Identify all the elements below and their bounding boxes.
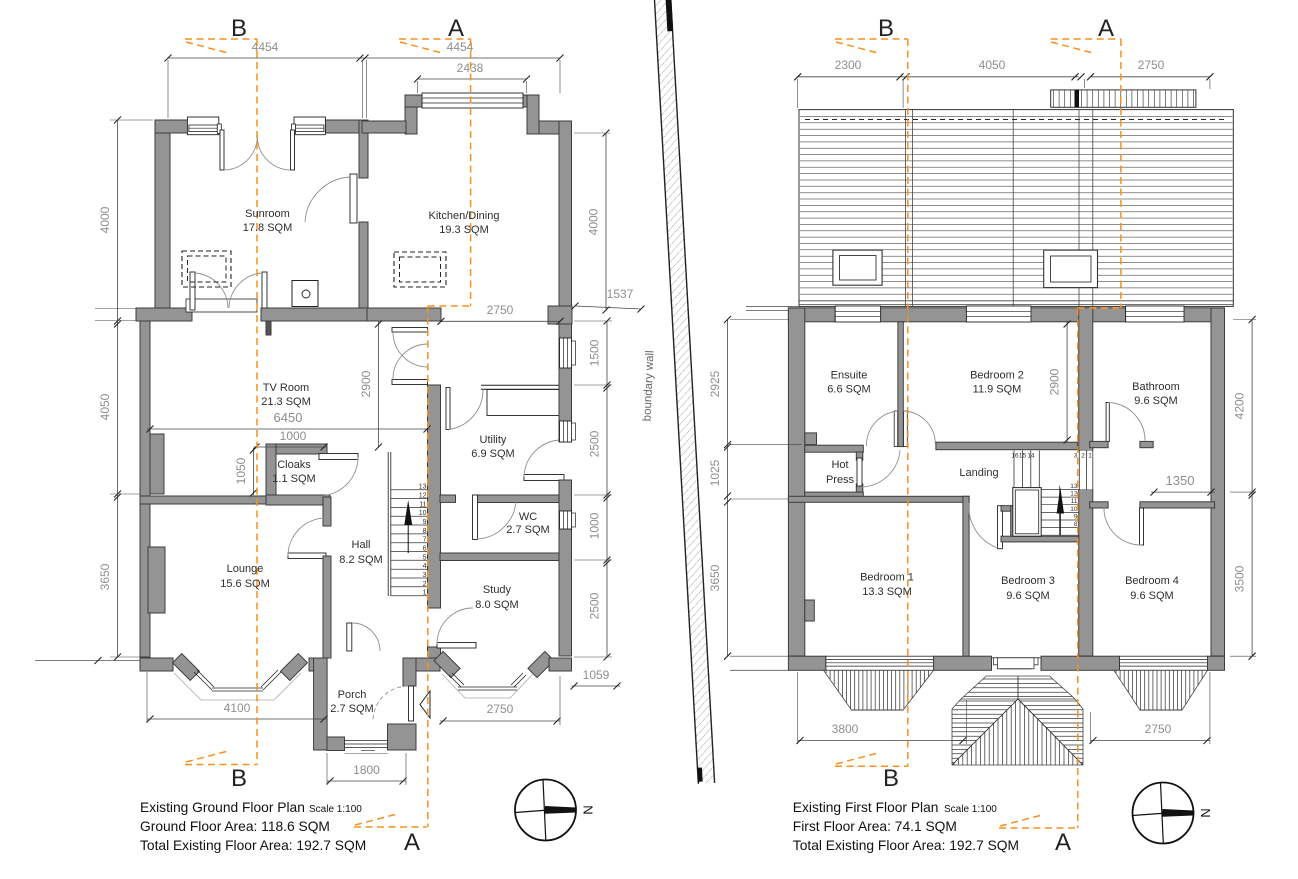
svg-text:Landing: Landing (959, 467, 998, 479)
svg-text:1050: 1050 (234, 457, 248, 484)
svg-text:2750: 2750 (487, 303, 514, 317)
svg-text:B: B (231, 15, 247, 42)
svg-text:3800: 3800 (832, 722, 859, 736)
svg-text:4000: 4000 (98, 206, 112, 233)
svg-text:Bedroom 3: Bedroom 3 (1001, 575, 1055, 587)
svg-text:A: A (1055, 829, 1071, 856)
svg-text:2925: 2925 (708, 370, 722, 397)
svg-text:4100: 4100 (224, 701, 251, 715)
svg-text:15.6 SQM: 15.6 SQM (220, 578, 270, 590)
svg-text:1: 1 (423, 590, 427, 597)
svg-text:N: N (581, 805, 596, 814)
svg-text:Total Existing Floor Area: 192: Total Existing Floor Area: 192.7 SQM (793, 838, 1019, 853)
svg-text:12: 12 (419, 493, 427, 500)
svg-text:4050: 4050 (98, 393, 112, 420)
svg-text:Bedroom 4: Bedroom 4 (1125, 575, 1179, 587)
svg-text:9.6 SQM: 9.6 SQM (1130, 590, 1173, 602)
svg-text:Ground Floor Area: 118.6 SQM: Ground Floor Area: 118.6 SQM (140, 819, 330, 834)
svg-text:10: 10 (419, 510, 427, 517)
svg-text:2500: 2500 (588, 430, 602, 457)
svg-text:4050: 4050 (979, 58, 1006, 72)
svg-text:4000: 4000 (587, 208, 601, 235)
svg-text:Scale 1:100: Scale 1:100 (309, 804, 362, 815)
svg-text:8.0 SQM: 8.0 SQM (475, 599, 518, 611)
svg-text:Hall: Hall (352, 539, 371, 551)
svg-text:A: A (1098, 15, 1114, 42)
svg-text:13.3 SQM: 13.3 SQM (862, 586, 912, 598)
svg-text:1025: 1025 (708, 459, 722, 486)
svg-text:6450: 6450 (274, 410, 303, 425)
svg-text:11: 11 (419, 501, 426, 508)
svg-text:B: B (231, 765, 247, 792)
svg-text:4454: 4454 (252, 40, 279, 54)
svg-text:2: 2 (423, 581, 427, 588)
svg-text:13: 13 (419, 484, 427, 491)
svg-text:A: A (448, 15, 464, 42)
svg-text:Cloaks: Cloaks (277, 459, 311, 471)
svg-text:13: 13 (1070, 483, 1078, 490)
svg-text:Total Existing Floor Area: 192: Total Existing Floor Area: 192.7 SQM (140, 838, 366, 853)
svg-text:9: 9 (423, 519, 427, 526)
svg-text:11.9 SQM: 11.9 SQM (973, 384, 1022, 396)
svg-text:9.6 SQM: 9.6 SQM (1006, 590, 1049, 602)
svg-text:1537: 1537 (607, 287, 634, 301)
svg-text:Bedroom 2: Bedroom 2 (970, 370, 1024, 382)
svg-text:1059: 1059 (583, 668, 610, 682)
svg-text:WC: WC (519, 511, 537, 523)
svg-text:4454: 4454 (447, 40, 474, 54)
svg-text:12: 12 (1070, 491, 1078, 498)
svg-text:2: 2 (1081, 453, 1085, 460)
svg-text:4200: 4200 (1233, 392, 1247, 419)
svg-text:3500: 3500 (1233, 565, 1247, 592)
svg-text:B: B (883, 765, 899, 792)
svg-text:B: B (878, 15, 894, 42)
svg-text:9.6 SQM: 9.6 SQM (1134, 395, 1177, 407)
svg-text:1000: 1000 (280, 429, 307, 443)
svg-text:Kitchen/Dining: Kitchen/Dining (429, 210, 500, 222)
svg-text:Sunroom: Sunroom (245, 208, 290, 220)
svg-text:TV Room: TV Room (263, 382, 309, 394)
svg-text:Press: Press (826, 474, 855, 486)
svg-text:17.8 SQM: 17.8 SQM (243, 222, 293, 234)
svg-text:1: 1 (1088, 453, 1092, 460)
svg-text:Scale 1:100: Scale 1:100 (944, 804, 997, 815)
svg-text:6.6 SQM: 6.6 SQM (827, 384, 870, 396)
svg-text:2.7 SQM: 2.7 SQM (506, 524, 549, 536)
svg-text:3: 3 (423, 572, 427, 579)
svg-text:Porch: Porch (338, 689, 367, 701)
svg-text:2900: 2900 (359, 370, 373, 397)
svg-text:2.7 SQM: 2.7 SQM (330, 703, 373, 715)
svg-text:19.3 SQM: 19.3 SQM (439, 224, 489, 236)
svg-text:2300: 2300 (835, 58, 862, 72)
svg-text:3650: 3650 (98, 563, 112, 590)
svg-text:8: 8 (423, 528, 427, 535)
svg-text:2750: 2750 (1138, 58, 1165, 72)
svg-text:1.1 SQM: 1.1 SQM (272, 473, 315, 485)
svg-text:10: 10 (1070, 506, 1078, 513)
svg-text:Existing First Floor Plan: Existing First Floor Plan (793, 800, 939, 815)
svg-text:16: 16 (1011, 453, 1019, 460)
svg-text:1350: 1350 (1166, 473, 1195, 488)
svg-text:A: A (404, 829, 420, 856)
svg-text:N: N (1198, 808, 1213, 817)
svg-text:Hot: Hot (831, 459, 848, 471)
svg-text:3650: 3650 (708, 564, 722, 591)
svg-text:15: 15 (1019, 453, 1027, 460)
svg-text:8.2 SQM: 8.2 SQM (339, 554, 382, 566)
svg-text:5: 5 (423, 554, 427, 561)
svg-text:2500: 2500 (588, 592, 602, 619)
svg-text:6.9 SQM: 6.9 SQM (471, 448, 514, 460)
svg-text:Bathroom: Bathroom (1132, 381, 1180, 393)
svg-text:11: 11 (1071, 498, 1078, 505)
svg-text:1800: 1800 (353, 763, 380, 777)
svg-text:Existing Ground Floor Plan: Existing Ground Floor Plan (140, 800, 305, 815)
svg-text:First Floor Area: 74.1 SQM: First Floor Area: 74.1 SQM (793, 819, 957, 834)
svg-text:6: 6 (423, 546, 427, 553)
svg-text:7: 7 (423, 537, 427, 544)
svg-text:Ensuite: Ensuite (831, 370, 868, 382)
svg-text:Lounge: Lounge (227, 563, 264, 575)
svg-text:2750: 2750 (1145, 722, 1172, 736)
svg-text:1500: 1500 (588, 339, 602, 366)
svg-text:Utility: Utility (480, 434, 507, 446)
svg-text:2750: 2750 (487, 702, 514, 716)
svg-text:1000: 1000 (588, 512, 602, 539)
svg-text:4: 4 (423, 563, 427, 570)
svg-text:Study: Study (483, 584, 512, 596)
svg-text:Bedroom 1: Bedroom 1 (860, 572, 914, 584)
svg-text:2900: 2900 (1048, 368, 1062, 395)
svg-text:21.3 SQM: 21.3 SQM (261, 396, 311, 408)
svg-text:14: 14 (1027, 453, 1035, 460)
